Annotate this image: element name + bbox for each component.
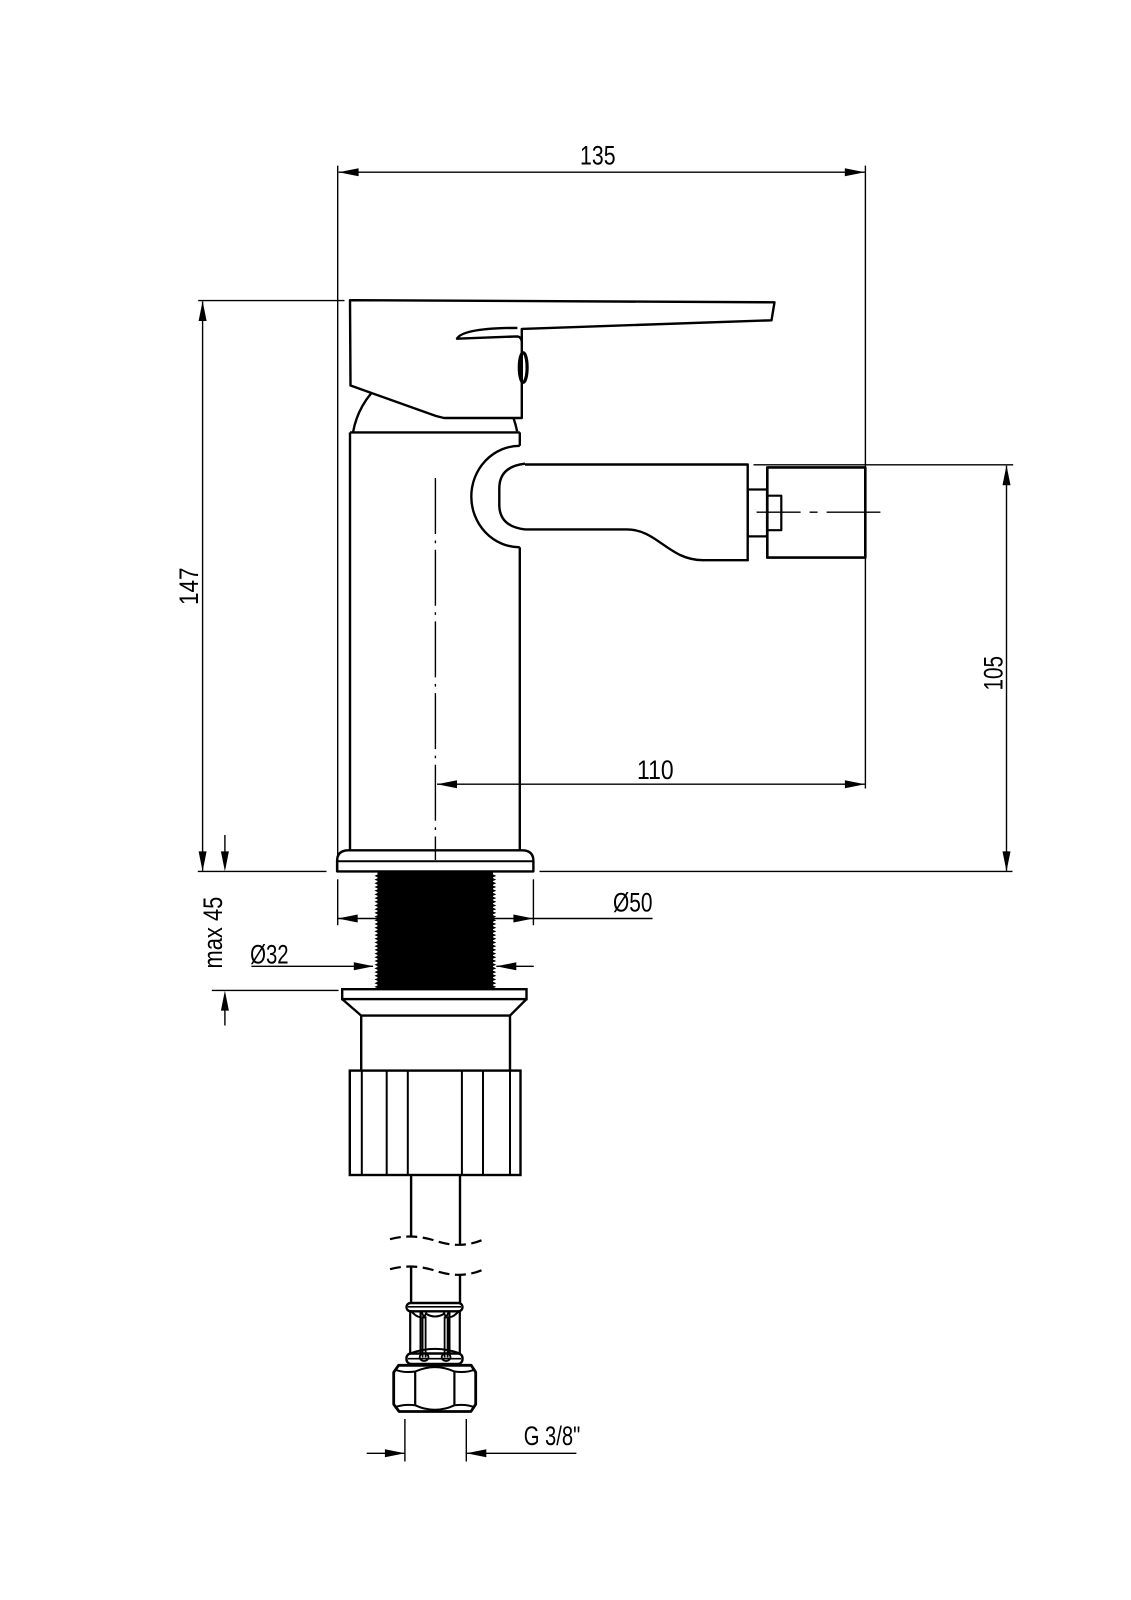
svg-text:G 3/8": G 3/8" <box>524 1421 581 1451</box>
svg-text:105: 105 <box>978 656 1008 691</box>
svg-text:147: 147 <box>174 568 204 606</box>
svg-text:max 45: max 45 <box>198 897 228 969</box>
svg-text:110: 110 <box>637 755 674 785</box>
svg-text:135: 135 <box>580 141 616 171</box>
svg-text:Ø32: Ø32 <box>250 939 289 969</box>
svg-text:Ø50: Ø50 <box>613 888 653 918</box>
